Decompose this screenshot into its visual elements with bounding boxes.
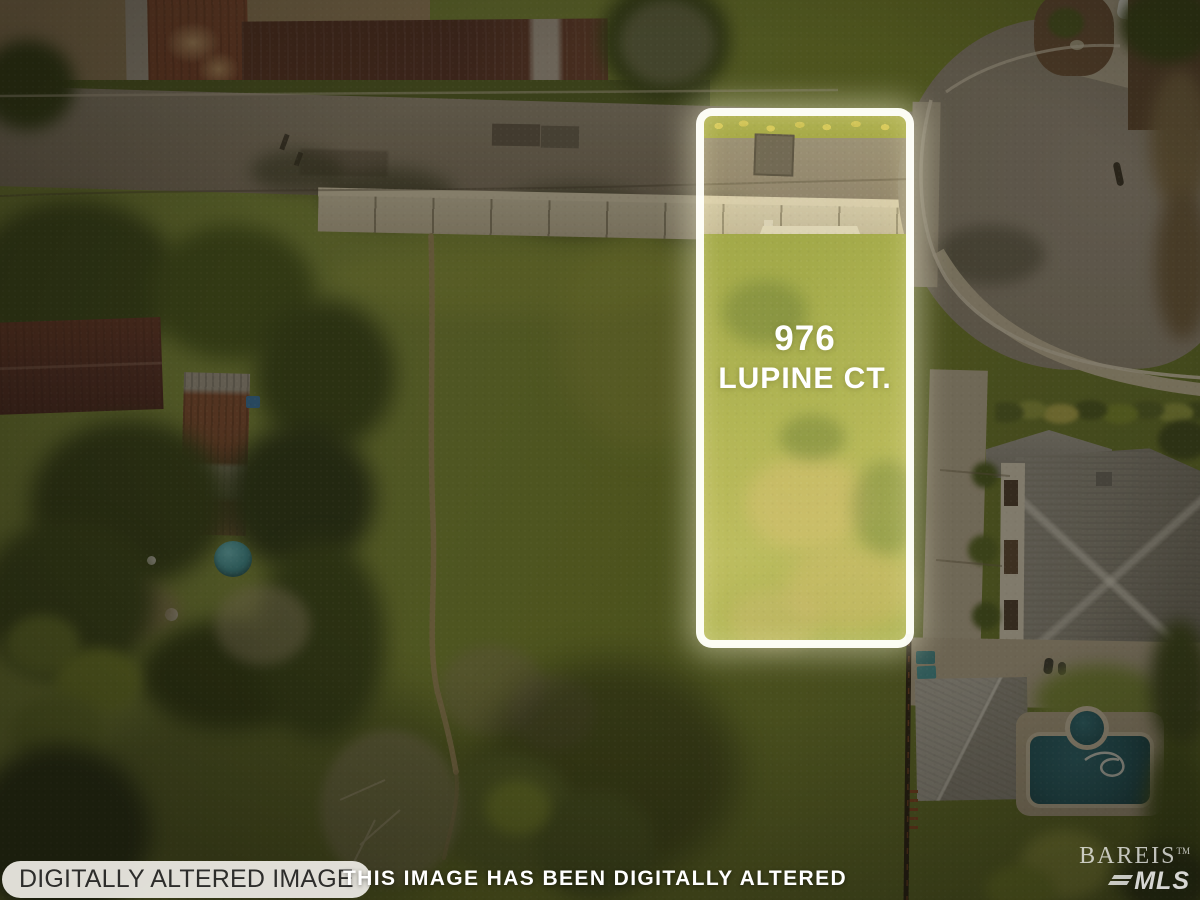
property-outline: 976 LUPINE CT. — [696, 108, 914, 648]
bareis-wordmark: BAREISTM — [1079, 844, 1190, 868]
mls-wordmark: MLS — [1079, 869, 1190, 894]
digitally-altered-badge: DIGITALLY ALTERED IMAGE — [2, 861, 371, 898]
logo-name: BAREIS — [1079, 843, 1176, 869]
logo-suffix: MLS — [1134, 867, 1190, 895]
aerial-photo: 976 LUPINE CT. DIGITALLY ALTERED IMAGE T… — [0, 0, 1200, 900]
vignette — [0, 0, 1200, 900]
lot-street: LUPINE CT. — [704, 362, 906, 395]
mls-stripes-icon — [1107, 873, 1135, 887]
lot-number: 976 — [704, 320, 906, 359]
digitally-altered-banner: THIS IMAGE HAS BEEN DIGITALLY ALTERED — [343, 867, 847, 891]
bareis-mls-logo: BAREISTM MLS — [1079, 844, 1190, 894]
lot-address-label: 976 LUPINE CT. — [704, 320, 906, 395]
logo-trademark-icon: TM — [1177, 846, 1191, 856]
